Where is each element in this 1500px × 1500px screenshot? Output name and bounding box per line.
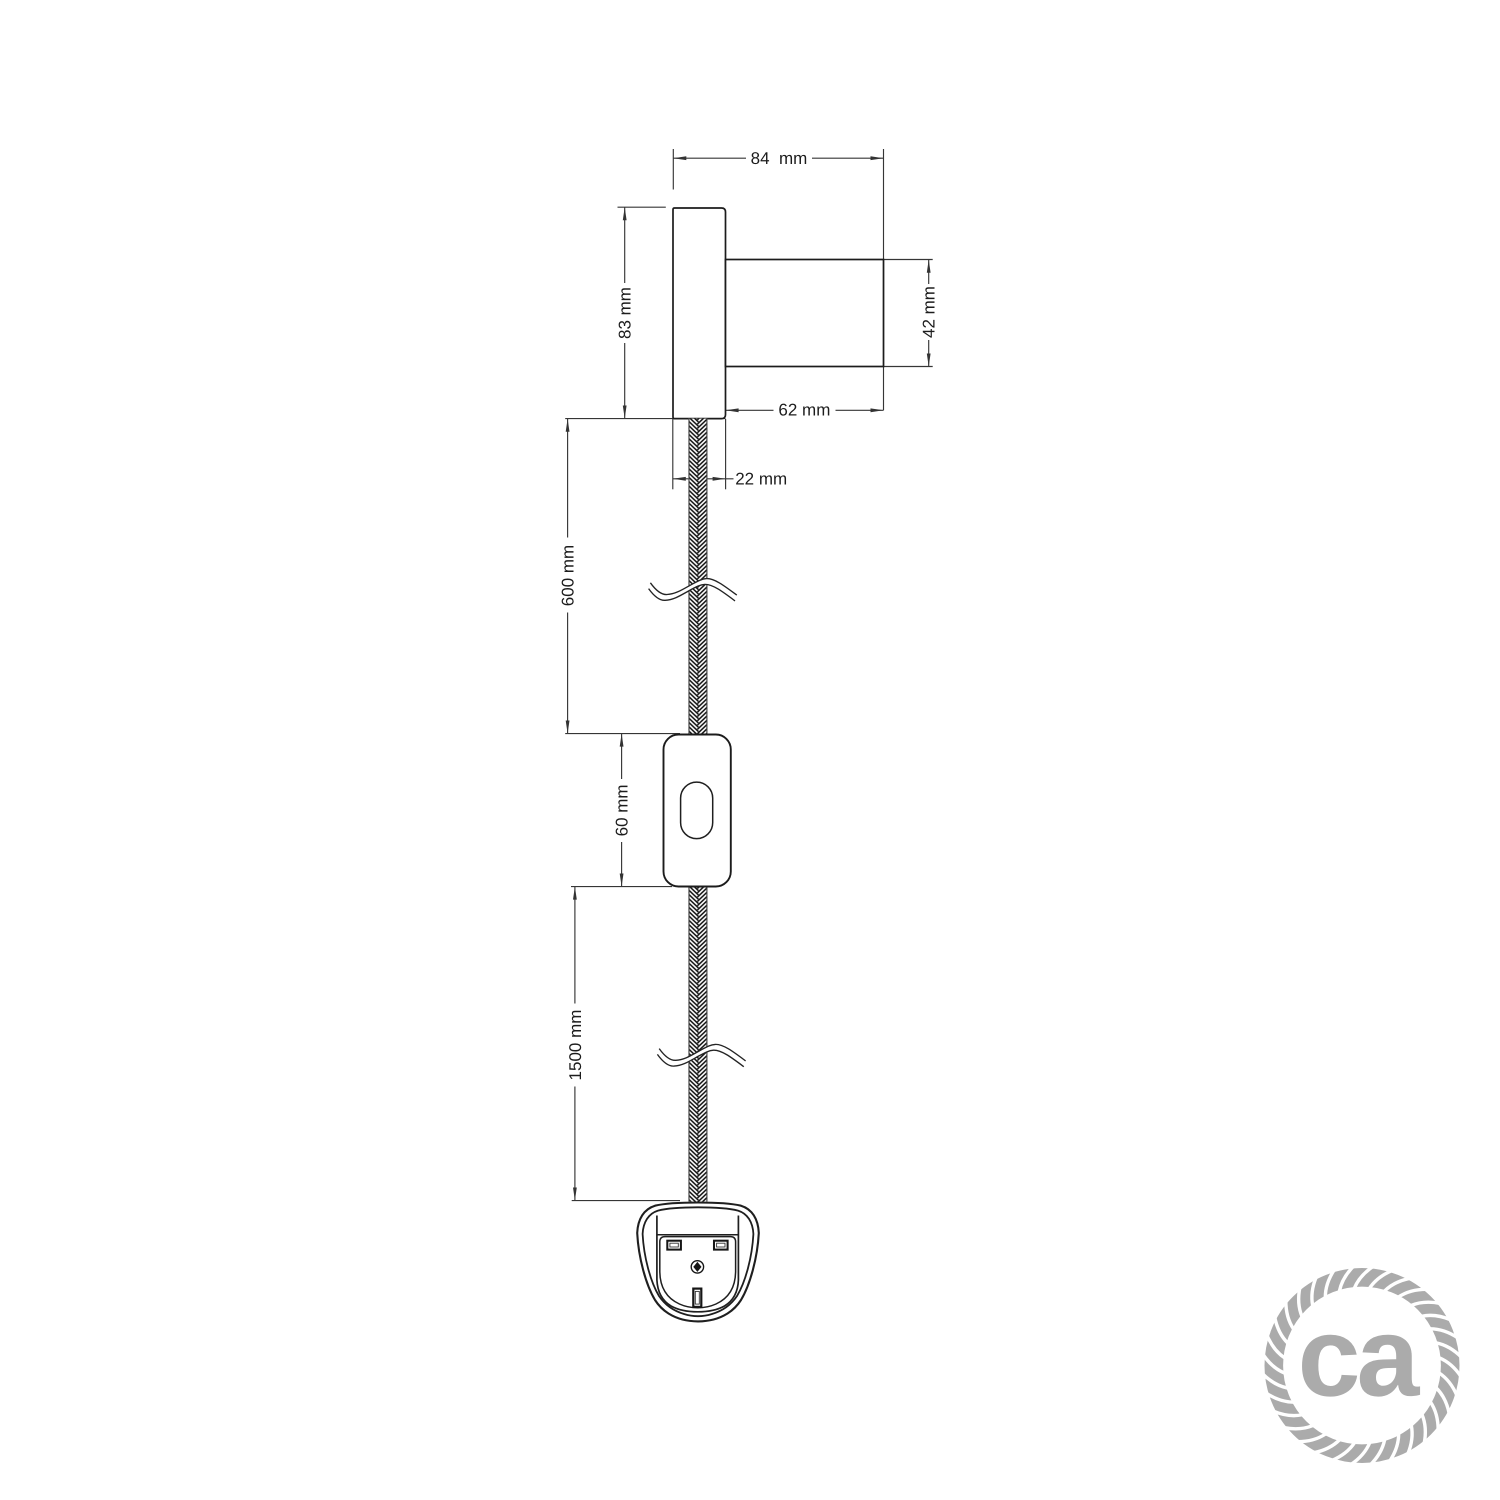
svg-text:84 mm: 84 mm xyxy=(751,149,808,168)
svg-text:62 mm: 62 mm xyxy=(778,401,830,420)
svg-text:42 mm: 42 mm xyxy=(920,286,939,338)
svg-text:22 mm: 22 mm xyxy=(735,470,787,489)
svg-text:60 mm: 60 mm xyxy=(613,784,632,836)
svg-text:600 mm: 600 mm xyxy=(559,545,578,606)
svg-text:83 mm: 83 mm xyxy=(616,287,635,339)
svg-text:1500 mm: 1500 mm xyxy=(566,1010,585,1081)
svg-text:ca: ca xyxy=(1298,1294,1421,1420)
